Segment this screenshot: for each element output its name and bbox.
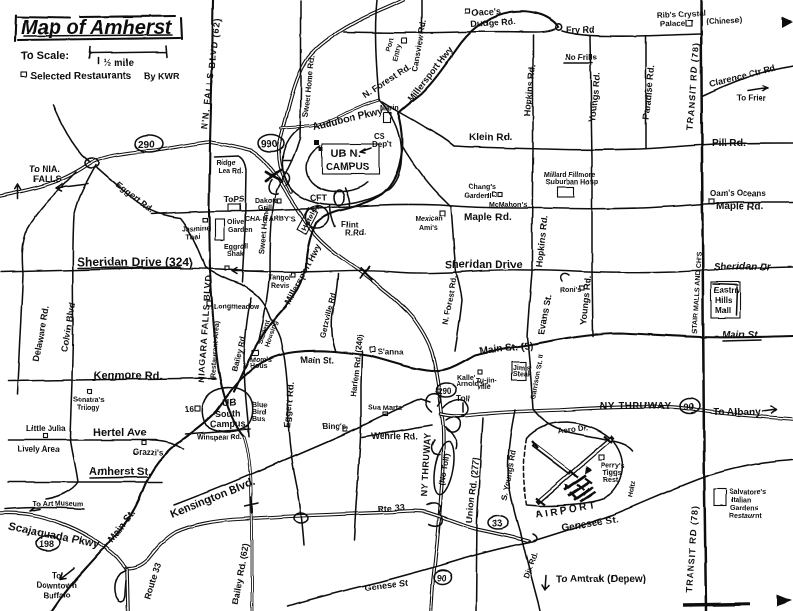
svg-text:Grill: Grill (258, 205, 272, 212)
svg-text:33: 33 (492, 518, 502, 528)
svg-text:CFT: CFT (310, 193, 328, 203)
svg-text:Maple Rd.: Maple Rd. (716, 201, 763, 212)
svg-text:Fry Rd: Fry Rd (566, 25, 595, 35)
svg-text:Mexican: Mexican (415, 216, 443, 223)
svg-text:Roni's: Roni's (560, 287, 581, 294)
svg-text:Sua Marta: Sua Marta (368, 405, 402, 412)
svg-text:Restaurnt: Restaurnt (729, 513, 762, 520)
svg-text:Pill Rd.: Pill Rd. (712, 138, 746, 149)
svg-text:Main St.: Main St. (722, 330, 760, 341)
svg-text:CAMPUS: CAMPUS (326, 162, 370, 173)
svg-text:Trilogy: Trilogy (77, 405, 100, 412)
svg-text:Shak: Shak (227, 251, 244, 258)
svg-text:Sonatra's: Sonatra's (73, 397, 105, 404)
svg-text:Campus: Campus (210, 419, 246, 429)
svg-text:Wehrle Rd.: Wehrle Rd. (371, 431, 418, 441)
svg-text:Suburban Hosp: Suburban Hosp (546, 179, 598, 186)
svg-text:Grazzi's: Grazzi's (133, 448, 164, 457)
svg-text:FALLS: FALLS (33, 174, 62, 184)
svg-text:Blue: Blue (252, 402, 267, 409)
svg-text:ToPS: ToPS (224, 195, 245, 204)
svg-text:Lively Area: Lively Area (17, 445, 60, 454)
svg-text:To Albany: To Albany (713, 407, 761, 418)
svg-text:Lea Rd.: Lea Rd. (218, 168, 243, 175)
svg-text:CHA-N ARBY'S: CHA-N ARBY'S (245, 216, 296, 223)
svg-text:Maple Rd.: Maple Rd. (464, 212, 511, 223)
svg-text:Klein Rd.: Klein Rd. (469, 132, 513, 143)
svg-text:Ami's: Ami's (419, 225, 438, 232)
svg-text:South: South (215, 409, 241, 419)
svg-text:ville: ville (477, 384, 491, 391)
svg-text:Winspear Rd.: Winspear Rd. (197, 434, 242, 441)
svg-text:Eggroll: Eggroll (224, 244, 248, 251)
svg-text:(Chinese): (Chinese) (706, 15, 743, 26)
svg-text:To Frier: To Frier (737, 94, 766, 103)
svg-text:Gardens: Gardens (730, 505, 759, 512)
svg-text:Millard Fillmore: Millard Fillmore (544, 172, 596, 179)
svg-text:To Amtrak (Depew): To Amtrak (Depew) (556, 574, 646, 585)
svg-text:290: 290 (438, 387, 452, 396)
svg-text:Oam's Oceans: Oam's Oceans (710, 189, 766, 198)
svg-text:Perry's: Perry's (601, 463, 625, 470)
svg-text:II: II (487, 193, 491, 200)
svg-text:Buffalo: Buffalo (43, 591, 71, 600)
svg-text:Dakota: Dakota (255, 198, 278, 205)
svg-text:990: 990 (261, 139, 278, 150)
svg-text:Palace: Palace (660, 19, 686, 29)
svg-text:Rest.: Rest. (603, 477, 620, 484)
svg-text:90: 90 (684, 402, 694, 412)
svg-text:16: 16 (185, 405, 194, 414)
svg-text:Bus: Bus (252, 416, 265, 423)
svg-text:Garden: Garden (228, 227, 253, 234)
svg-text:Kenmore Rd.: Kenmore Rd. (94, 370, 162, 382)
svg-text:Revis: Revis (271, 283, 290, 290)
svg-text:UB N.: UB N. (331, 148, 361, 160)
svg-text:Jasmine: Jasmine (182, 226, 210, 233)
svg-text:Italian: Italian (731, 497, 751, 504)
svg-text:Garden: Garden (464, 193, 489, 200)
svg-text:Hertel Ave: Hertel Ave (93, 427, 147, 439)
svg-text:Selected Restaurants: Selected Restaurants (30, 71, 132, 82)
svg-text:Sheridan Drive: Sheridan Drive (445, 259, 523, 271)
svg-text:McMahon's: McMahon's (489, 202, 527, 209)
svg-text:Hous: Hous (250, 363, 268, 370)
svg-text:Steak: Steak (513, 371, 532, 378)
svg-text:Tiggs: Tiggs (603, 470, 622, 477)
svg-text:Amherst St.: Amherst St. (89, 466, 151, 478)
svg-text:290: 290 (138, 140, 155, 151)
svg-text:Dep't: Dep't (372, 140, 392, 149)
svg-text:NY THRUWAY: NY THRUWAY (600, 401, 671, 412)
svg-text:To Art Museum: To Art Museum (33, 501, 83, 508)
svg-text:½ mile: ½ mile (103, 58, 135, 69)
svg-text:Rte 33: Rte 33 (377, 502, 405, 514)
svg-text:Eastrn: Eastrn (714, 286, 739, 295)
svg-text:UB: UB (222, 398, 236, 409)
svg-text:Chang's: Chang's (468, 184, 495, 191)
svg-text:Olive: Olive (227, 219, 244, 226)
svg-text:Ridge: Ridge (216, 160, 236, 167)
svg-text:To NIA.: To NIA. (29, 164, 60, 174)
svg-text:Salvatore's: Salvatore's (729, 489, 766, 496)
svg-text:R.Rd.: R.Rd. (345, 228, 366, 237)
svg-text:Sheridan Dr: Sheridan Dr (714, 262, 772, 273)
svg-text:Downtown: Downtown (36, 581, 77, 590)
svg-text:Mall: Mall (715, 306, 731, 315)
svg-text:Bird: Bird (252, 409, 266, 416)
svg-text:S'anna: S'anna (378, 348, 404, 357)
svg-text:Main St.: Main St. (300, 355, 335, 365)
svg-text:Little Julia: Little Julia (26, 424, 66, 433)
svg-text:90: 90 (437, 573, 447, 583)
svg-text:Toll: Toll (456, 394, 470, 403)
svg-text:Thai: Thai (186, 234, 200, 241)
svg-text:To Scale:: To Scale: (21, 50, 69, 62)
svg-text:Hills: Hills (715, 296, 732, 305)
svg-text:Marin: Marin (380, 105, 399, 112)
svg-text:By KWR: By KWR (144, 71, 180, 81)
svg-text:Tangol: Tangol (268, 275, 290, 282)
svg-text:No Frills: No Frills (565, 53, 598, 62)
svg-text:Longmeadow: Longmeadow (214, 304, 260, 311)
